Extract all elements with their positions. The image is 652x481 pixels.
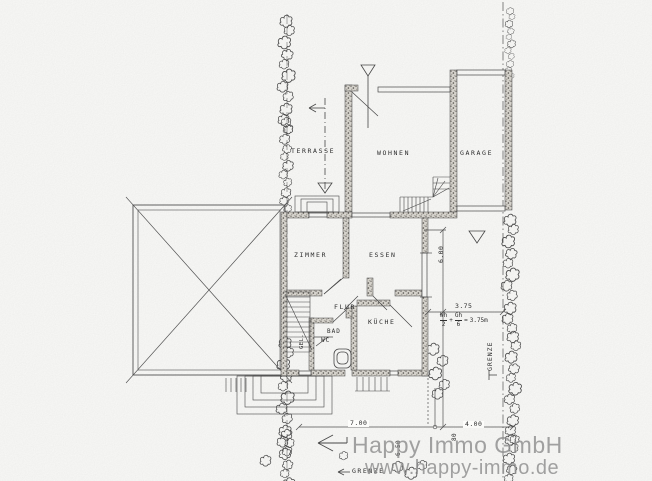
paper-noise — [0, 0, 652, 481]
dim-garage-width: 4.00 — [463, 421, 484, 428]
dim-right-height: 6.00 — [438, 246, 445, 263]
watermark-url: www.happy-immo.de — [365, 458, 559, 478]
watermark-company: Happy Immo GmbH — [352, 434, 563, 457]
floorplan-page: TERRASSE WOHNEN GARAGE ZIMMER ESSEN FLUR… — [0, 0, 652, 481]
dim-setback: 3.75 — [455, 303, 472, 310]
stair-rail-label: GEL. — [300, 334, 306, 349]
formula-fraction-1: Wh2 — [440, 313, 447, 328]
dim-house-width: 7.00 — [348, 420, 369, 427]
formula-equals: = — [464, 318, 468, 324]
setback-formula: Wh2 + Gh6 = 3.75m — [440, 313, 488, 328]
formula-operator: + — [449, 318, 453, 324]
room-label-kueche: KÜCHE — [368, 319, 396, 326]
formula-result: 3.75m — [470, 318, 488, 324]
room-label-terrasse: TERRASSE — [291, 148, 335, 155]
room-label-wc: WC — [321, 338, 330, 344]
room-label-flur: FLUR — [334, 304, 356, 311]
floorplan-drawing — [0, 0, 652, 481]
grenze-label-right: GRENZE — [487, 342, 494, 371]
room-label-bad: BAD — [327, 329, 341, 335]
formula-fraction-2: Gh6 — [455, 313, 462, 328]
room-label-garage: GARAGE — [460, 150, 493, 157]
room-label-essen: ESSEN — [369, 252, 397, 259]
room-label-wohnen: WOHNEN — [377, 150, 410, 157]
room-label-zimmer: ZIMMER — [294, 252, 327, 259]
